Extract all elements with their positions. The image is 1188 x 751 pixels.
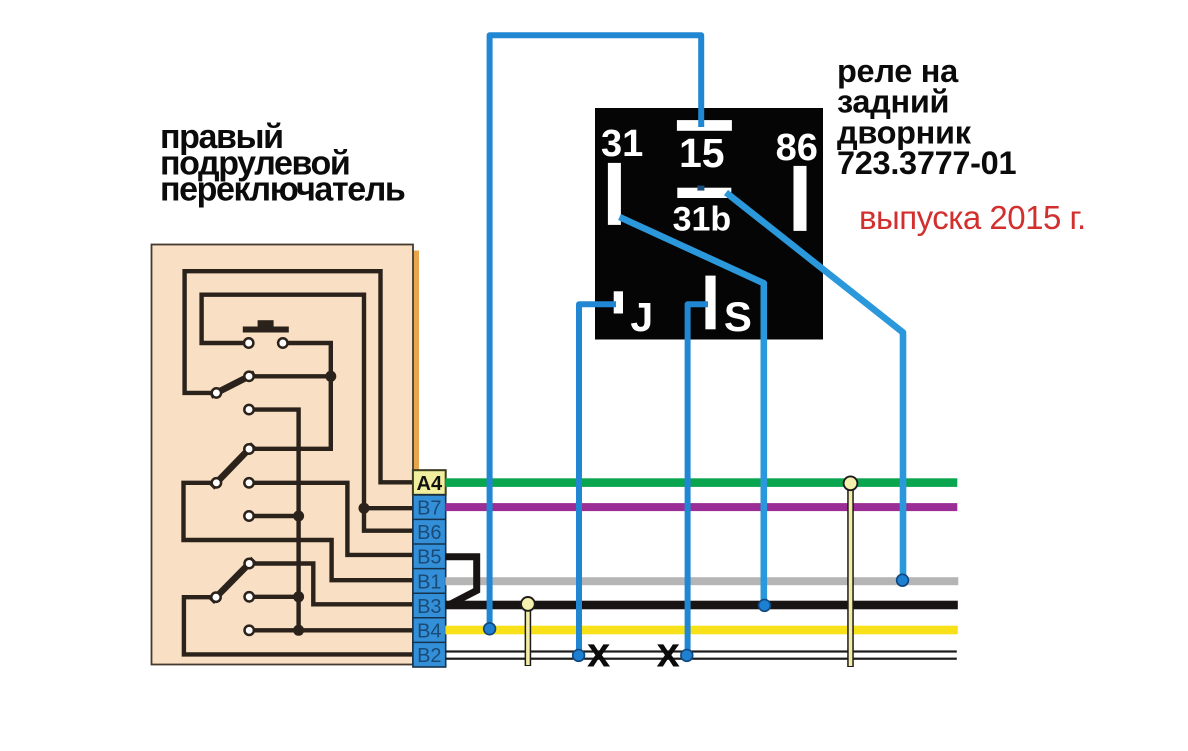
svg-text:86: 86 — [776, 127, 818, 169]
svg-text:B1: B1 — [417, 571, 441, 593]
svg-text:15: 15 — [679, 130, 725, 176]
svg-text:B6: B6 — [417, 522, 441, 544]
svg-text:31b: 31b — [673, 201, 732, 239]
svg-text:J: J — [630, 294, 653, 340]
svg-text:B2: B2 — [417, 645, 441, 667]
svg-text:723.3777-01: 723.3777-01 — [837, 145, 1016, 181]
svg-text:S: S — [724, 293, 752, 340]
svg-text:x: x — [587, 628, 611, 675]
svg-text:B3: B3 — [417, 596, 441, 618]
svg-text:x: x — [657, 628, 681, 675]
svg-text:переключатель: переключатель — [160, 171, 405, 209]
svg-text:B4: B4 — [417, 621, 441, 643]
svg-text:B5: B5 — [417, 547, 441, 569]
svg-text:31: 31 — [601, 123, 643, 165]
svg-text:A4: A4 — [417, 473, 443, 495]
svg-text:выпуска 2015 г.: выпуска 2015 г. — [859, 199, 1086, 236]
svg-text:B7: B7 — [417, 498, 441, 520]
